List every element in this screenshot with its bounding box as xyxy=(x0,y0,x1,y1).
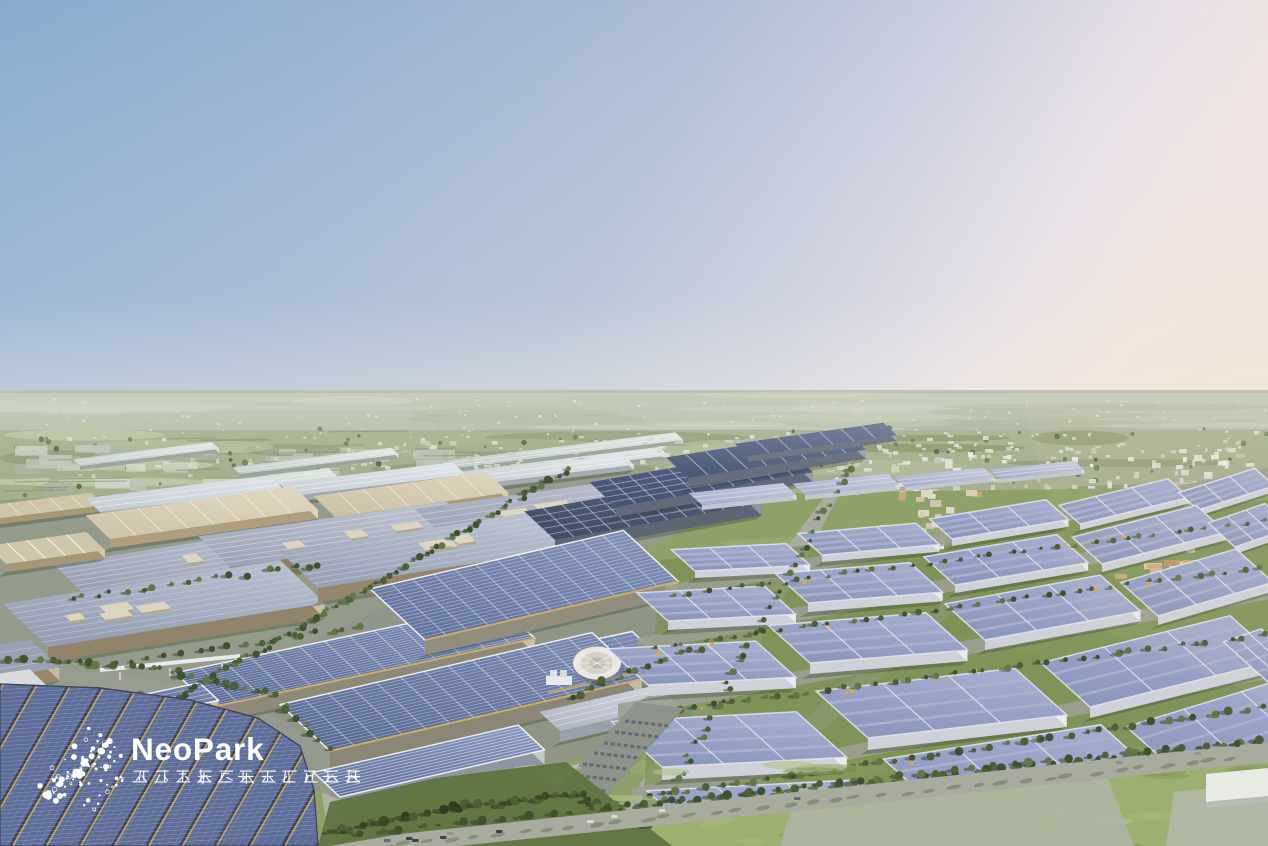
svg-text:NeoPark: NeoPark xyxy=(131,731,264,767)
